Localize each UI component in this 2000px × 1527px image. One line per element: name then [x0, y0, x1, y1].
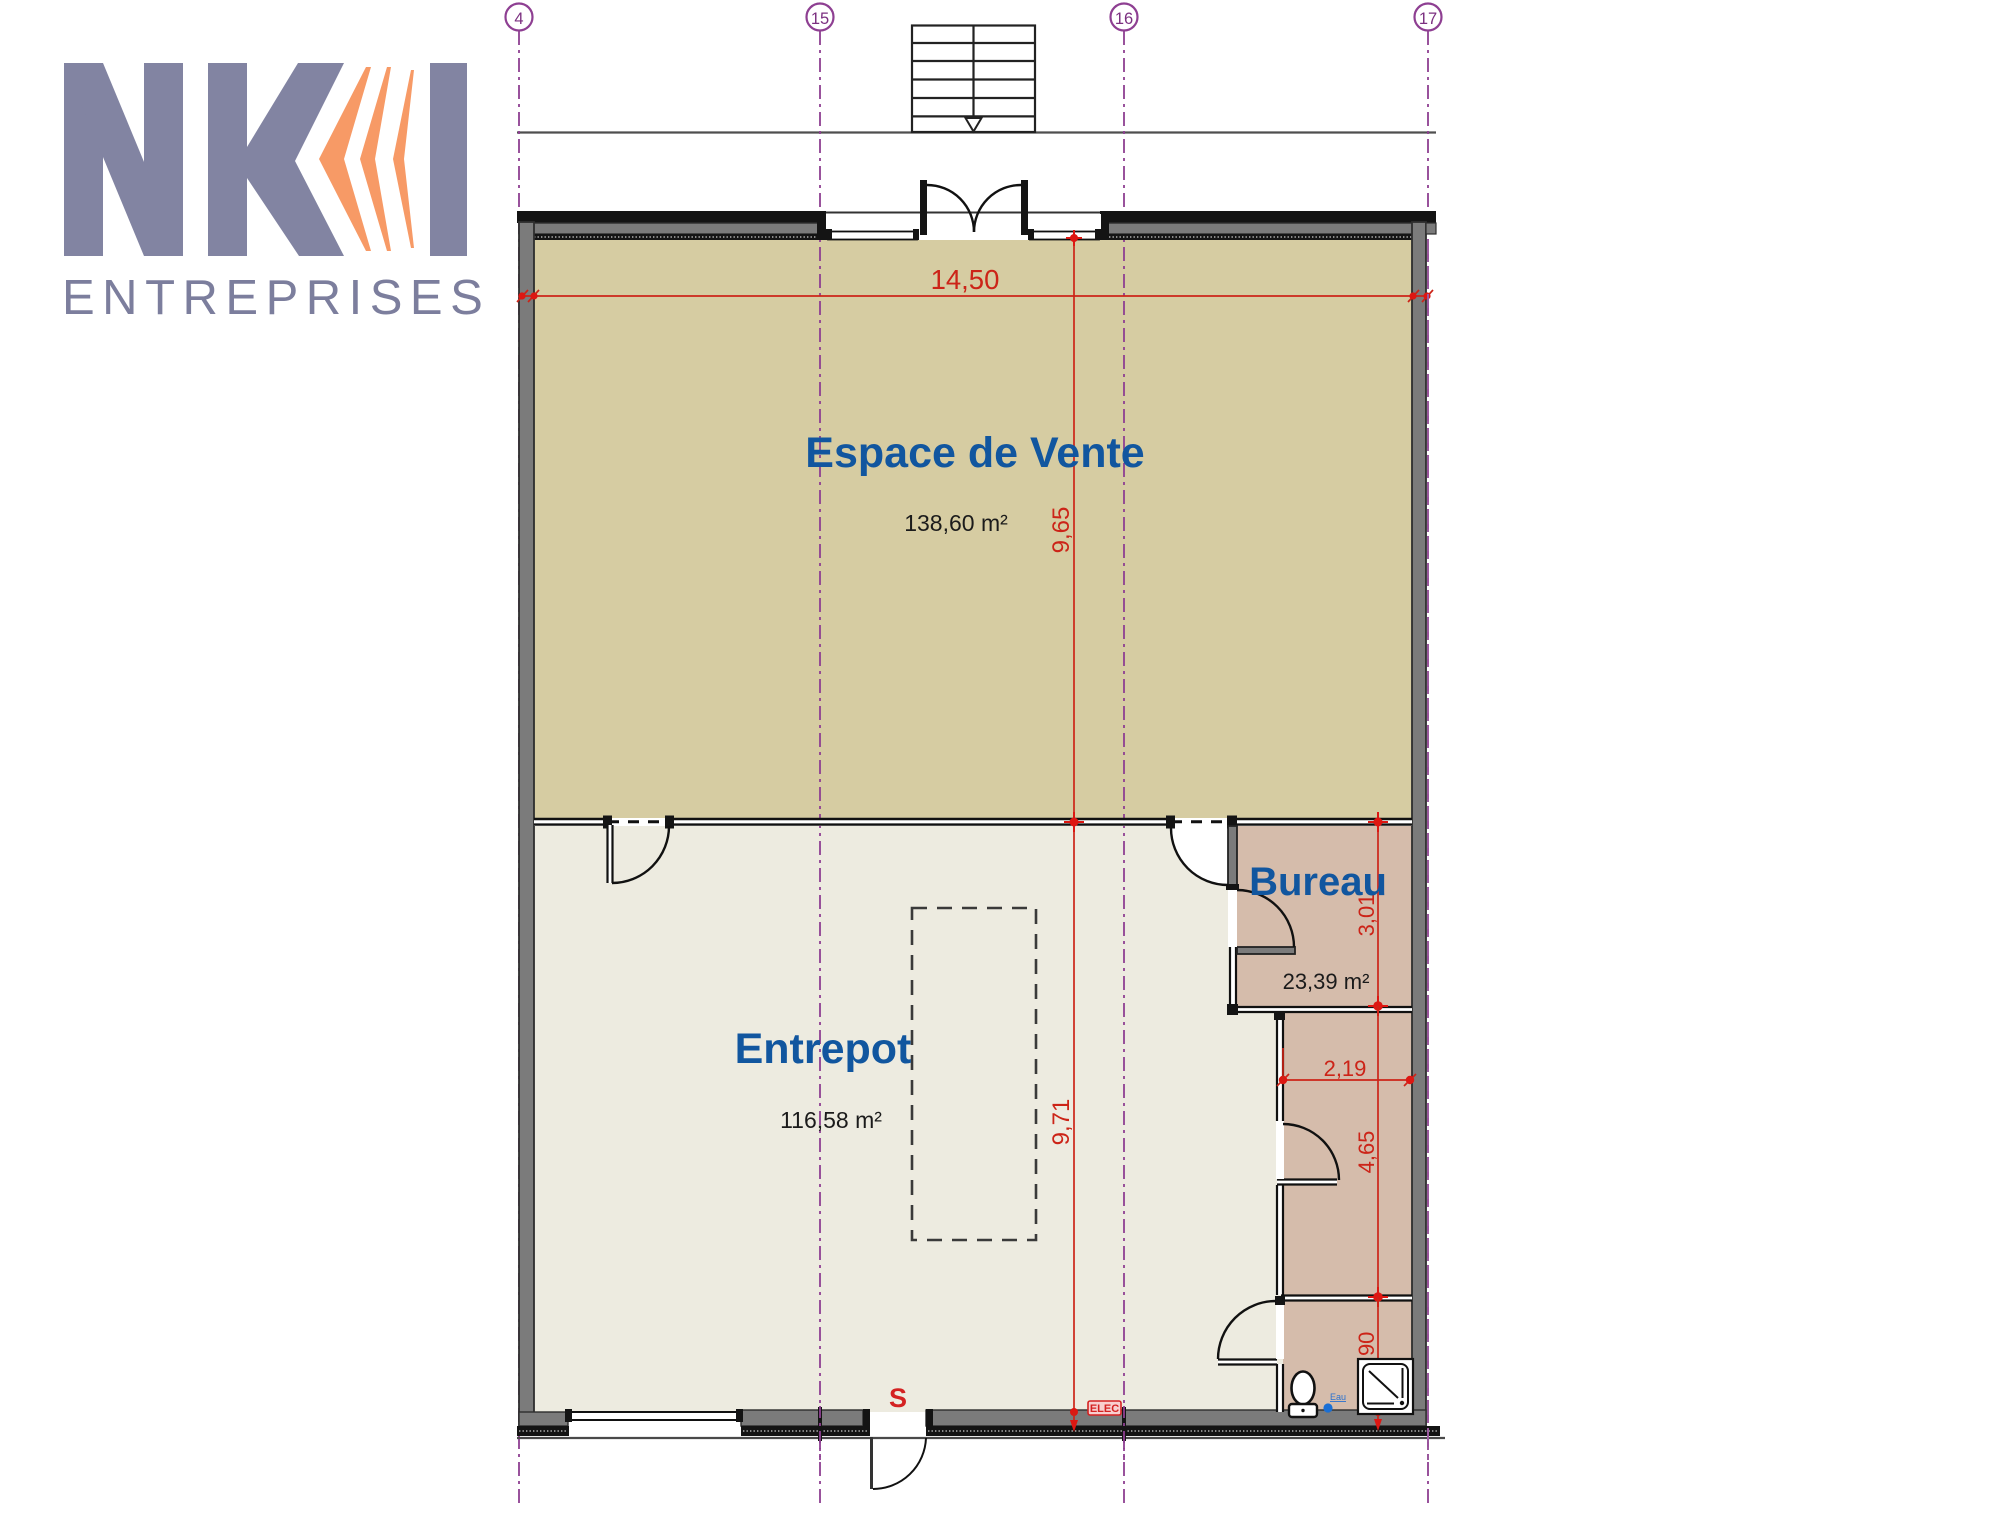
svg-text:9,65: 9,65	[1048, 507, 1075, 554]
svg-text:14,50: 14,50	[931, 264, 1000, 295]
svg-text:4,65: 4,65	[1354, 1131, 1379, 1174]
svg-text:ELEC: ELEC	[1090, 1403, 1119, 1415]
svg-text:2,19: 2,19	[1324, 1056, 1367, 1081]
svg-text:9,71: 9,71	[1048, 1099, 1075, 1146]
svg-text:116,58 m²: 116,58 m²	[780, 1107, 882, 1133]
svg-text:Eau: Eau	[1330, 1392, 1346, 1402]
svg-text:Bureau: Bureau	[1249, 860, 1387, 904]
svg-text:17: 17	[1419, 10, 1437, 28]
svg-text:S: S	[889, 1383, 907, 1413]
svg-text:4: 4	[514, 10, 523, 28]
svg-text:Espace de Vente: Espace de Vente	[805, 429, 1144, 477]
svg-text:23,39 m²: 23,39 m²	[1283, 969, 1370, 994]
svg-text:16: 16	[1115, 10, 1133, 28]
svg-text:Entrepot: Entrepot	[735, 1025, 912, 1073]
svg-text:ENTREPRISES: ENTREPRISES	[62, 271, 490, 325]
svg-text:138,60 m²: 138,60 m²	[904, 510, 1008, 536]
svg-text:15: 15	[811, 10, 829, 28]
